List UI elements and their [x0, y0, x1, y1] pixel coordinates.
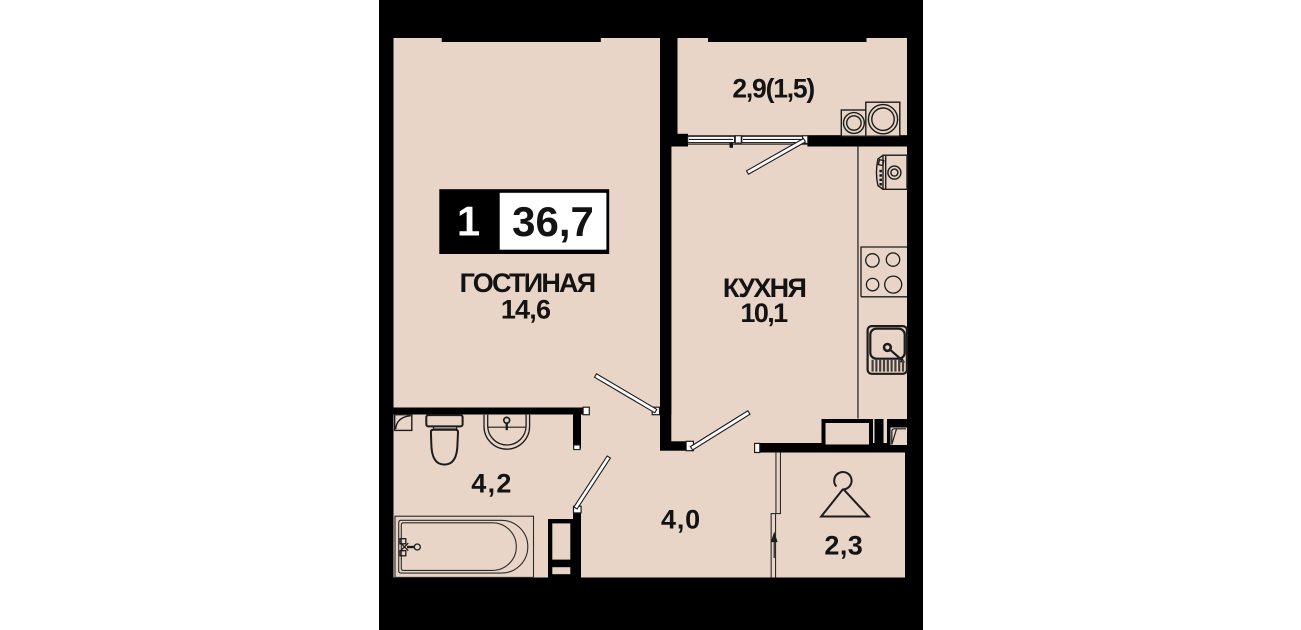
svg-text:ГОСТИНАЯ: ГОСТИНАЯ [460, 268, 595, 298]
svg-text:36,7: 36,7 [512, 198, 594, 245]
svg-text:14,6: 14,6 [501, 295, 551, 325]
svg-text:4,2: 4,2 [471, 469, 512, 499]
svg-text:2,3: 2,3 [824, 531, 863, 561]
svg-text:10,1: 10,1 [740, 298, 788, 328]
svg-text:4,0: 4,0 [661, 505, 701, 535]
svg-text:2,9(1,5): 2,9(1,5) [732, 74, 814, 104]
svg-text:1: 1 [457, 198, 480, 245]
